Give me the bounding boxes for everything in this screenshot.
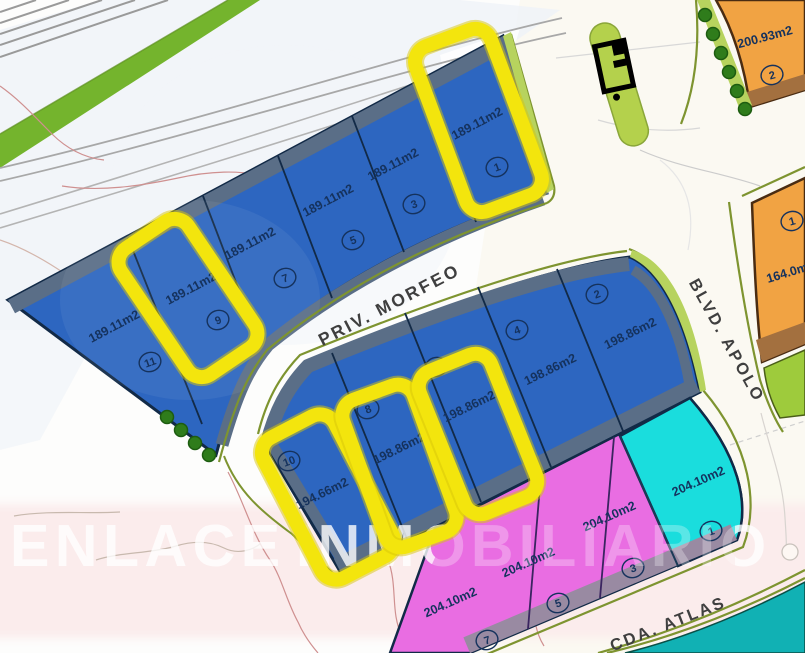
svg-text:ENLACE: ENLACE — [10, 513, 286, 579]
